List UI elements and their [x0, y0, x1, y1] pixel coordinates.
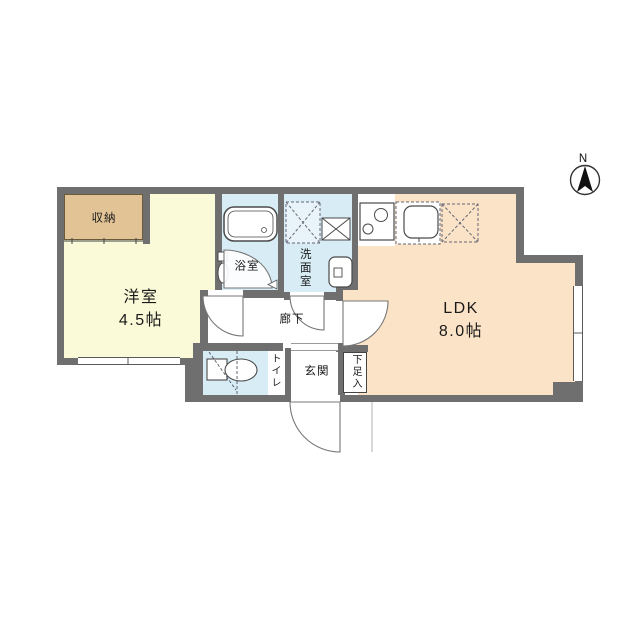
label-ldk: LDK — [443, 301, 479, 317]
label-entrance: 玄関 — [305, 366, 330, 378]
fixtures-layer: N — [0, 0, 640, 640]
ldk-door-arc — [343, 301, 388, 346]
washing-machine-icon — [286, 202, 320, 243]
label-western-room: 洋室 — [123, 290, 158, 306]
label-toilet: トイレ — [269, 353, 279, 389]
label-hallway: 廊下 — [280, 314, 305, 326]
refrigerator-space-icon — [442, 204, 478, 242]
label-ldk-size: 8.0帖 — [439, 324, 483, 340]
label-bathroom: 浴室 — [235, 261, 260, 273]
toilet-icon — [207, 351, 257, 394]
north-compass-icon: N — [571, 153, 600, 195]
entrance-door-arc — [290, 402, 372, 452]
washbasin-icon — [329, 257, 352, 287]
storage-door-line — [64, 238, 143, 244]
floor-plan: N 収納 洋室 4.5帖 浴室 洗面室 廊下 LDK 8.0帖 トイレ 玄関 下… — [0, 0, 640, 640]
label-storage: 収納 — [92, 213, 117, 225]
compass-north-label: N — [579, 153, 587, 165]
bathtub-icon — [224, 207, 277, 241]
stove-icon — [360, 203, 394, 240]
label-washroom: 洗面室 — [298, 248, 310, 289]
label-western-room-size: 4.5帖 — [119, 313, 163, 329]
storage-box-icon — [322, 218, 350, 240]
label-shoe-cabinet: 下足入 — [350, 354, 360, 390]
western-room-door-arc — [203, 296, 243, 336]
kitchen-sink-icon — [396, 202, 440, 244]
